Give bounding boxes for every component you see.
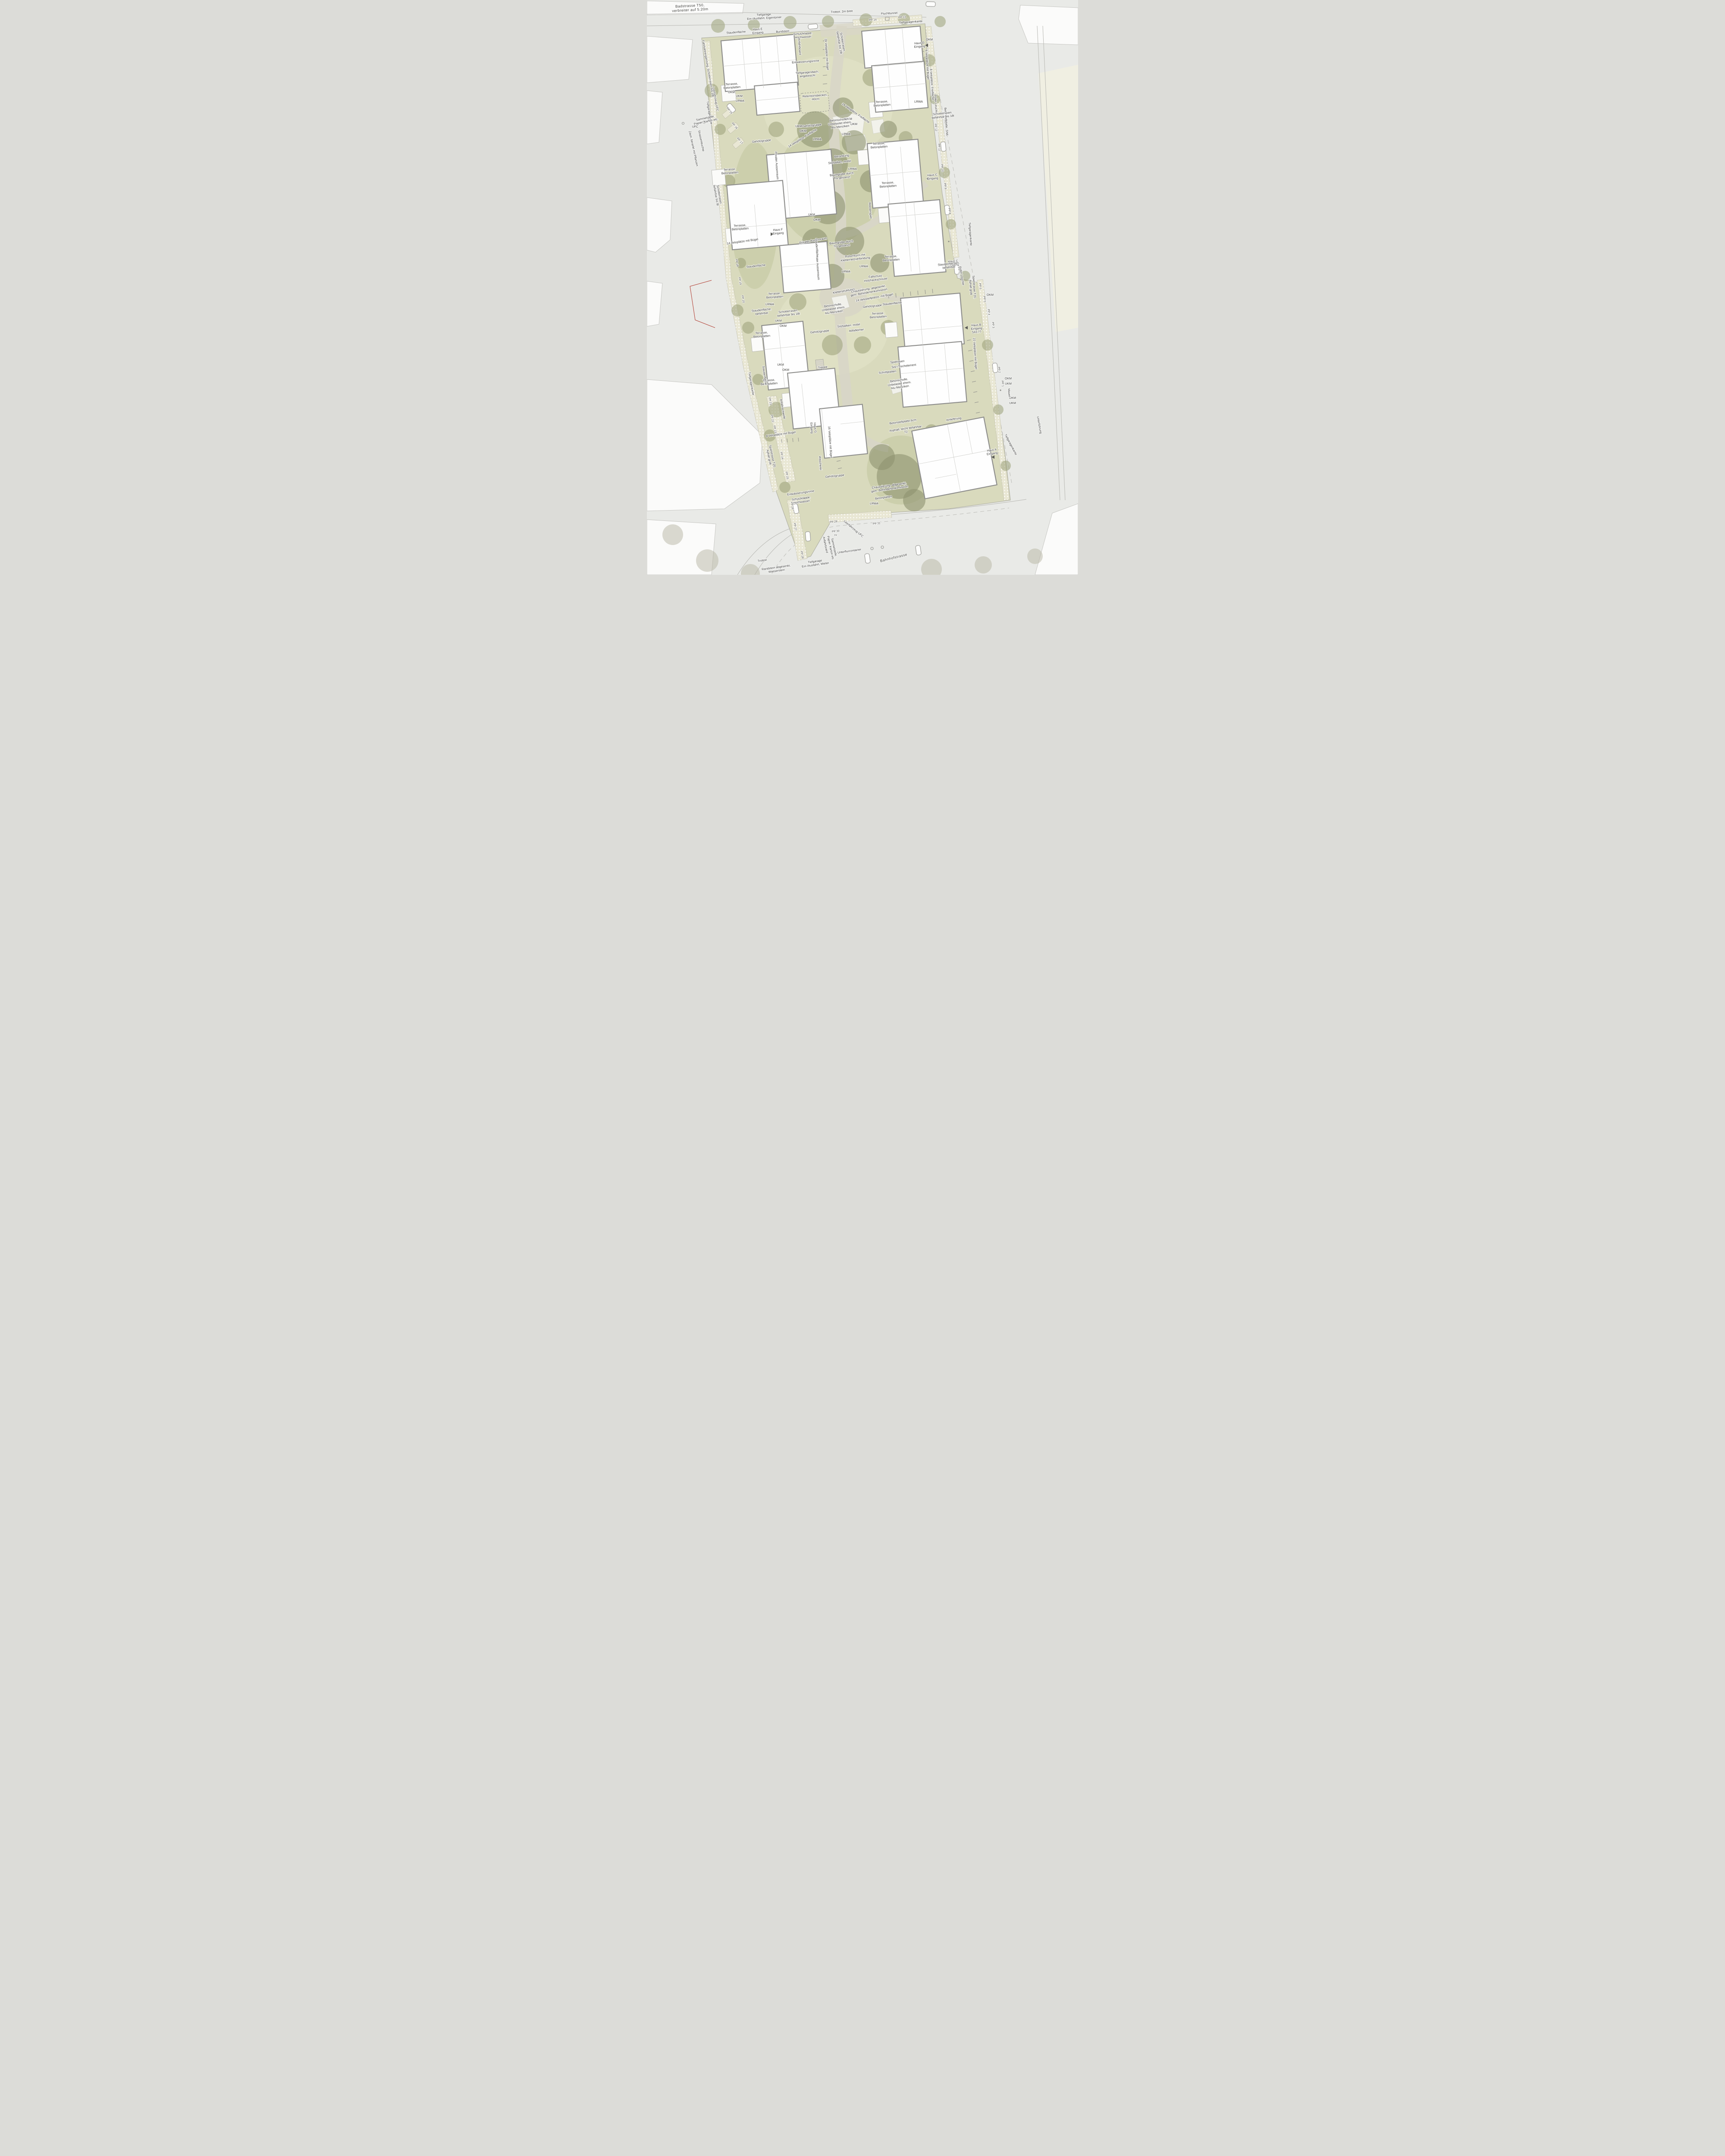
label-lrwa: LRWA bbox=[870, 502, 878, 505]
label-pp14: PP 14 bbox=[869, 18, 877, 22]
label-lrwa: LRWA bbox=[842, 270, 850, 273]
label-pp13: PP 13 bbox=[898, 16, 906, 19]
label-okm: OKM bbox=[1009, 397, 1016, 400]
label-pp2: PP 2 bbox=[997, 367, 1000, 373]
label-haus-g: Haus GEingang bbox=[809, 422, 817, 434]
label-pp6: PP 6 bbox=[978, 283, 982, 290]
label-pp1: PP 1 bbox=[1000, 381, 1004, 387]
label-okm: OKM bbox=[782, 369, 789, 372]
label-ukm: UKM bbox=[736, 95, 743, 98]
label-haus-d: Haus DEingang bbox=[914, 41, 925, 49]
haus-d bbox=[862, 26, 928, 118]
siteplan-page: Badstrasse T50,verbreiter auf 5.20m Trot… bbox=[647, 0, 1078, 575]
label-pp9: PP 9 bbox=[943, 183, 947, 190]
label-ukm: UKM bbox=[775, 320, 782, 323]
label-lrwa: LRWA bbox=[848, 168, 857, 171]
label-okm: OKM bbox=[800, 130, 806, 133]
label-lrwa: LRWA bbox=[813, 138, 822, 141]
label-pp5: PP 5 bbox=[982, 296, 986, 303]
label-okm: OKM bbox=[813, 219, 820, 222]
label-okm: OKM bbox=[1005, 377, 1012, 380]
context-building-left1 bbox=[647, 36, 693, 83]
label-pp3: PP 3 bbox=[991, 322, 994, 329]
label-okm: OKM bbox=[728, 91, 735, 94]
label-lrwa: LRWA bbox=[842, 133, 850, 136]
label-okm: OKM bbox=[780, 325, 787, 328]
label-ukm: UKM bbox=[1009, 402, 1016, 405]
label-ukm: UKM bbox=[1005, 382, 1012, 385]
label-pp8: PP 8 bbox=[947, 208, 951, 215]
label-lrwa: LRWA bbox=[736, 100, 744, 103]
label-lrwa: LRWA bbox=[914, 100, 923, 103]
label-ufc: UFC bbox=[692, 125, 698, 128]
label-lrwa: LRWA bbox=[765, 303, 774, 306]
label-lrwa: LRWA bbox=[859, 265, 868, 268]
label-ukm: UKM bbox=[777, 364, 784, 367]
haus-a bbox=[912, 417, 997, 498]
poller-icon bbox=[948, 241, 949, 242]
poller-icon bbox=[1000, 389, 1001, 391]
label-mauer: Mauer bbox=[1007, 389, 1010, 398]
label-haus-c-1: Haus CEingang bbox=[927, 173, 938, 181]
label-ukm: UKM bbox=[808, 213, 815, 216]
label-haus-f: Haus FEingang bbox=[772, 228, 784, 235]
label-okm: OKM bbox=[987, 294, 994, 297]
label-schutzklappe-1: Schutzklappe,Hochwasser bbox=[793, 31, 813, 39]
label-haus-b: Haus BEingang543.77 bbox=[971, 323, 982, 334]
label-haus-e: Haus EEingang bbox=[752, 28, 764, 35]
label-pp4: PP 4 bbox=[987, 309, 990, 316]
siteplan-drawing: Badstrasse T50,verbreiter auf 5.20m Trot… bbox=[647, 0, 1078, 575]
context-building-topright bbox=[1019, 5, 1078, 45]
label-okm-road-top: OKM bbox=[926, 38, 933, 41]
label-ukm: UKM bbox=[795, 125, 802, 128]
